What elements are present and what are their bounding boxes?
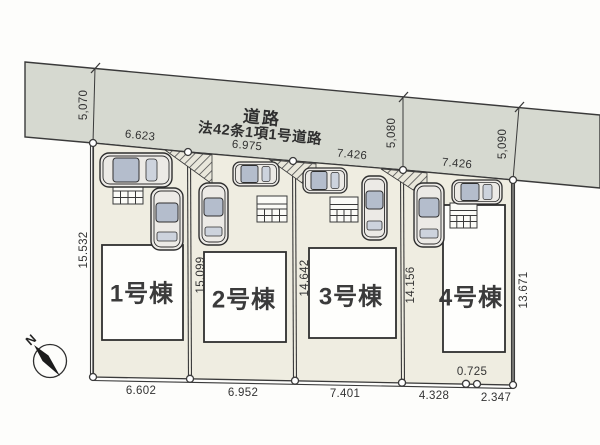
building-3: 3号棟 <box>309 248 396 338</box>
bottom-dim-2: 6.952 <box>228 387 258 399</box>
site-plan-drawing: 1号棟 2号棟 3号棟 4号棟 <box>0 0 600 445</box>
building-4-label: 4号棟 <box>439 285 503 312</box>
road-width-dim-1: 5,070 <box>78 90 90 120</box>
bottom-dim-3: 7.401 <box>330 388 360 400</box>
plot-boundary-left <box>91 143 94 377</box>
depth-dim-5: 13.671 <box>518 272 530 309</box>
bottom-dim-1: 6.602 <box>126 385 156 397</box>
entrance-steps-2 <box>257 196 287 222</box>
depth-dim-1: 15.532 <box>78 232 90 269</box>
bottom-dim-6: 2.347 <box>481 392 511 404</box>
building-3-label: 3号棟 <box>319 284 383 311</box>
car-plot1-horizontal <box>100 153 172 187</box>
entrance-steps-4 <box>450 203 477 228</box>
depth-dim-4: 14.156 <box>405 267 417 304</box>
car-plot3-horizontal <box>303 168 347 193</box>
entrance-steps-3 <box>330 197 358 222</box>
building-1-label: 1号棟 <box>110 281 174 308</box>
building-1: 1号棟 <box>102 245 183 340</box>
road-width-dim-2: 5,080 <box>386 118 398 148</box>
road-width-dim-3: 5,090 <box>497 129 509 159</box>
depth-dim-2: 15.099 <box>195 257 207 294</box>
car-plot4-vertical <box>414 183 444 247</box>
building-2: 2号棟 <box>204 252 286 342</box>
car-plot4-horizontal <box>452 180 502 204</box>
car-plot3-vertical <box>362 176 387 240</box>
car-plot2-horizontal <box>233 162 279 186</box>
compass: N <box>23 332 67 378</box>
depth-dim-3: 14.642 <box>299 260 311 297</box>
compass-north-label: N <box>23 332 39 348</box>
site-plan-page: 1号棟 2号棟 3号棟 4号棟 <box>0 0 600 445</box>
car-plot1-vertical <box>151 188 183 250</box>
bottom-dim-5: 0.725 <box>457 366 487 378</box>
building-2-label: 2号棟 <box>212 287 276 314</box>
bottom-dim-4: 4.328 <box>419 390 449 402</box>
car-plot2-vertical <box>199 183 228 245</box>
